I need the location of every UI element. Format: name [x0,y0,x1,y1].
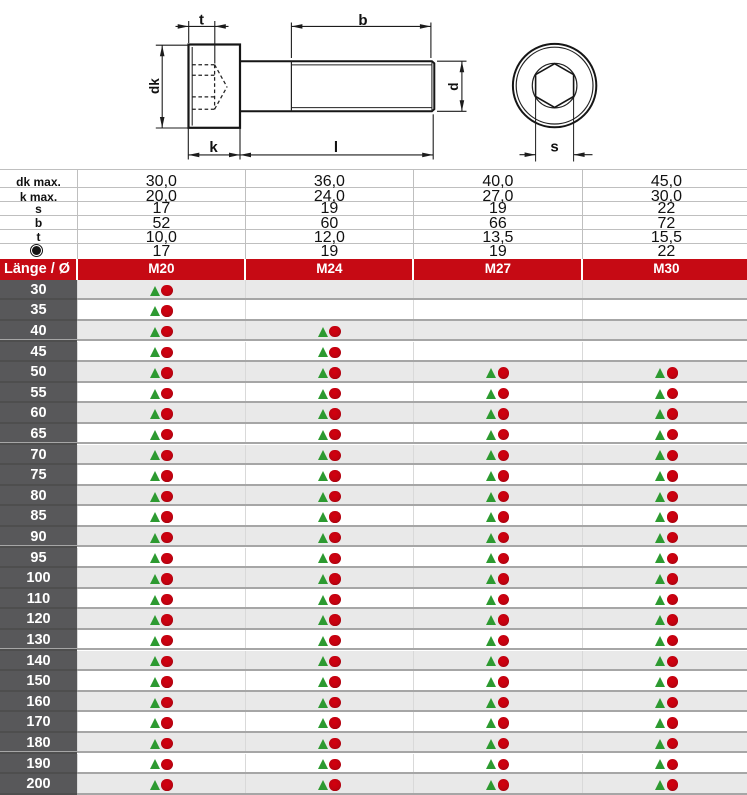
svg-text:t: t [199,12,204,29]
svg-text:b: b [358,12,367,29]
svg-text:l: l [334,139,338,156]
svg-text:d: d [446,82,461,90]
svg-text:k: k [209,139,218,156]
svg-text:dk: dk [147,78,162,94]
svg-text:s: s [550,139,558,156]
